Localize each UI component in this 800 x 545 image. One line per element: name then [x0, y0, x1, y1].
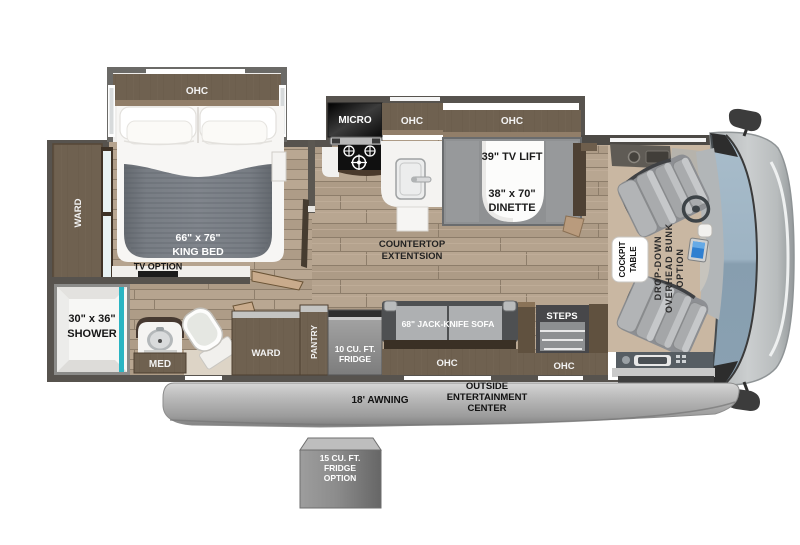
svg-text:OPTION: OPTION	[324, 473, 357, 483]
svg-text:WARD: WARD	[73, 198, 84, 227]
svg-text:KING BED: KING BED	[172, 246, 224, 258]
svg-text:OVERHEAD BUNK: OVERHEAD BUNK	[664, 223, 674, 313]
svg-text:STEPS: STEPS	[546, 311, 577, 322]
svg-text:EXTENTSION: EXTENTSION	[382, 251, 443, 262]
svg-text:OHC: OHC	[436, 358, 457, 369]
svg-text:FRIDGE: FRIDGE	[324, 463, 356, 473]
svg-text:15 CU. FT.: 15 CU. FT.	[320, 453, 361, 463]
svg-text:68" JACK-KNIFE SOFA: 68" JACK-KNIFE SOFA	[402, 319, 495, 329]
svg-text:DINETTE: DINETTE	[488, 202, 535, 214]
svg-text:38" x 70": 38" x 70"	[488, 188, 535, 200]
svg-text:OUTSIDE: OUTSIDE	[466, 381, 508, 392]
svg-text:ENTERTAINMENT: ENTERTAINMENT	[447, 392, 528, 403]
svg-text:TV OPTION: TV OPTION	[134, 262, 183, 272]
svg-text:30" x 36": 30" x 36"	[68, 313, 115, 325]
svg-text:10 CU. FT.: 10 CU. FT.	[335, 344, 376, 354]
svg-text:COUNTERTOP: COUNTERTOP	[379, 239, 446, 250]
svg-text:18' AWNING: 18' AWNING	[351, 395, 408, 406]
svg-text:SHOWER: SHOWER	[67, 328, 117, 340]
svg-text:OHC: OHC	[186, 86, 208, 97]
svg-text:39" TV LIFT: 39" TV LIFT	[482, 151, 543, 163]
svg-text:OHC: OHC	[401, 116, 423, 127]
svg-text:DROP-DOWN: DROP-DOWN	[653, 236, 663, 301]
svg-text:CENTER: CENTER	[467, 403, 506, 414]
svg-text:MICRO: MICRO	[338, 115, 372, 126]
svg-text:TABLE: TABLE	[629, 246, 638, 273]
svg-text:66" x 76": 66" x 76"	[176, 232, 221, 244]
svg-text:OPTION: OPTION	[675, 248, 685, 287]
svg-text:PANTRY: PANTRY	[309, 325, 319, 359]
svg-text:OHC: OHC	[553, 361, 574, 372]
svg-text:OHC: OHC	[501, 116, 523, 127]
svg-text:MED: MED	[149, 359, 171, 370]
svg-text:WARD: WARD	[251, 348, 280, 359]
svg-text:COCKPIT: COCKPIT	[618, 241, 627, 277]
svg-text:FRIDGE: FRIDGE	[339, 354, 371, 364]
